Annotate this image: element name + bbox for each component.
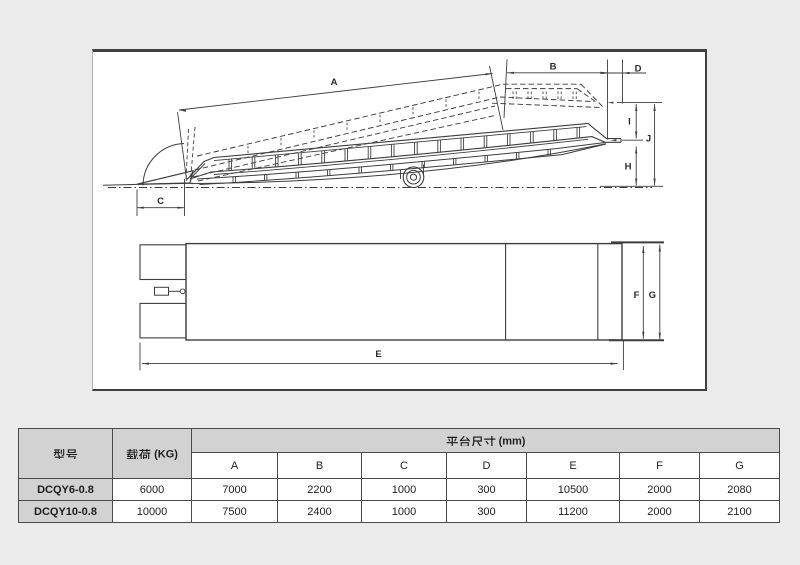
svg-text:I: I	[628, 117, 631, 128]
svg-text:E: E	[375, 349, 381, 360]
svg-text:C: C	[157, 196, 164, 207]
svg-text:B: B	[550, 62, 557, 73]
svg-text:J: J	[646, 134, 651, 145]
svg-text:G: G	[649, 290, 656, 301]
svg-text:D: D	[635, 64, 642, 75]
svg-text:H: H	[625, 162, 632, 173]
svg-text:A: A	[331, 77, 338, 88]
svg-text:F: F	[634, 290, 640, 301]
